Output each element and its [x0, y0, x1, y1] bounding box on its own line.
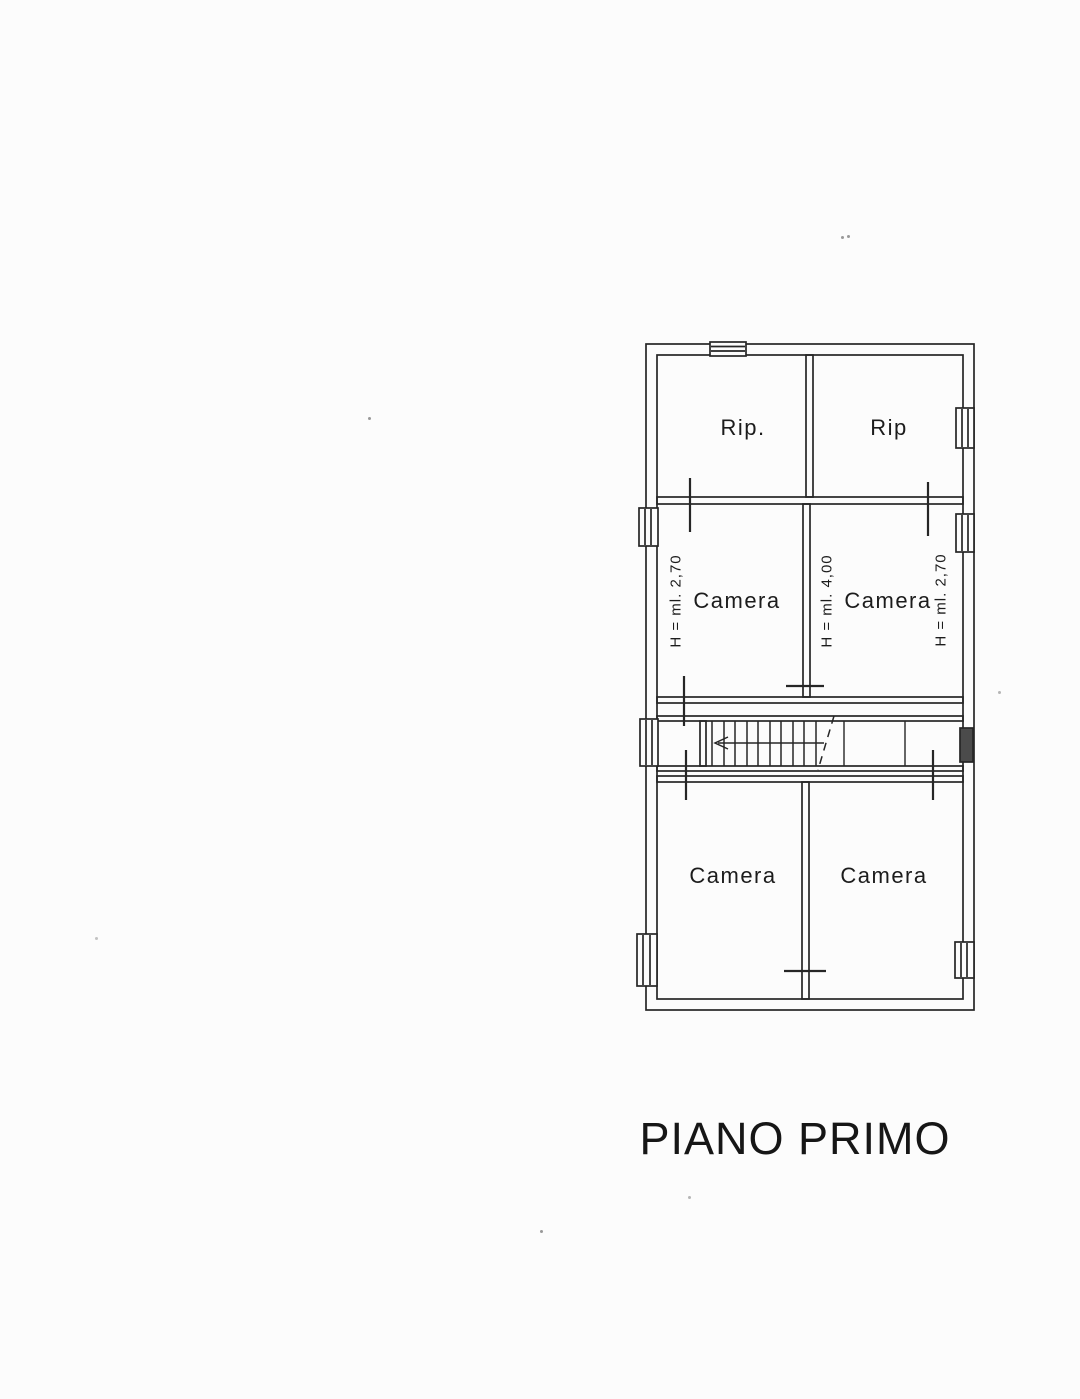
window-top [710, 342, 746, 356]
scanned-floor-plan-page: Rip. Rip Camera Camera Camera Camera H =… [0, 0, 1080, 1399]
scan-speck [998, 691, 1001, 694]
scan-speck [540, 1230, 543, 1233]
window-right-bottom [955, 942, 974, 978]
wall-rip-bottom [657, 497, 963, 504]
scan-speck [95, 937, 98, 940]
partition-camera-mid [803, 504, 810, 697]
room-label-rip-right: Rip [870, 415, 908, 441]
floor-title: PIANO PRIMO [639, 1113, 950, 1165]
window-right-corridor-dark [960, 728, 973, 762]
room-label-camera-mid-right: Camera [844, 588, 931, 614]
height-label-left: H = ml. 2,70 [668, 554, 685, 647]
partition-rip [806, 355, 813, 497]
scan-speck [841, 236, 844, 239]
wall-camera-bottom-top [657, 776, 963, 782]
scan-speck [847, 235, 850, 238]
window-left-mid [639, 508, 658, 546]
room-label-rip-left: Rip. [720, 415, 765, 441]
window-right-mid [956, 514, 974, 552]
height-label-middle: H = ml. 4,00 [819, 554, 836, 647]
scan-speck [368, 417, 371, 420]
window-left-corridor [640, 719, 658, 766]
interior-walls [657, 355, 963, 999]
window-right-rip [956, 408, 974, 448]
room-label-camera-bottom-right: Camera [840, 863, 927, 889]
height-label-right: H = ml. 2,70 [933, 553, 950, 646]
room-label-camera-bottom-left: Camera [689, 863, 776, 889]
room-label-camera-mid-left: Camera [693, 588, 780, 614]
wall-camera-mid-bottom [657, 697, 963, 703]
staircase [712, 716, 834, 770]
partition-camera-bottom [802, 782, 809, 999]
landing-wall [700, 721, 706, 766]
floor-plan-drawing [0, 0, 1080, 1399]
window-left-bottom [637, 934, 657, 986]
scan-speck [688, 1196, 691, 1199]
